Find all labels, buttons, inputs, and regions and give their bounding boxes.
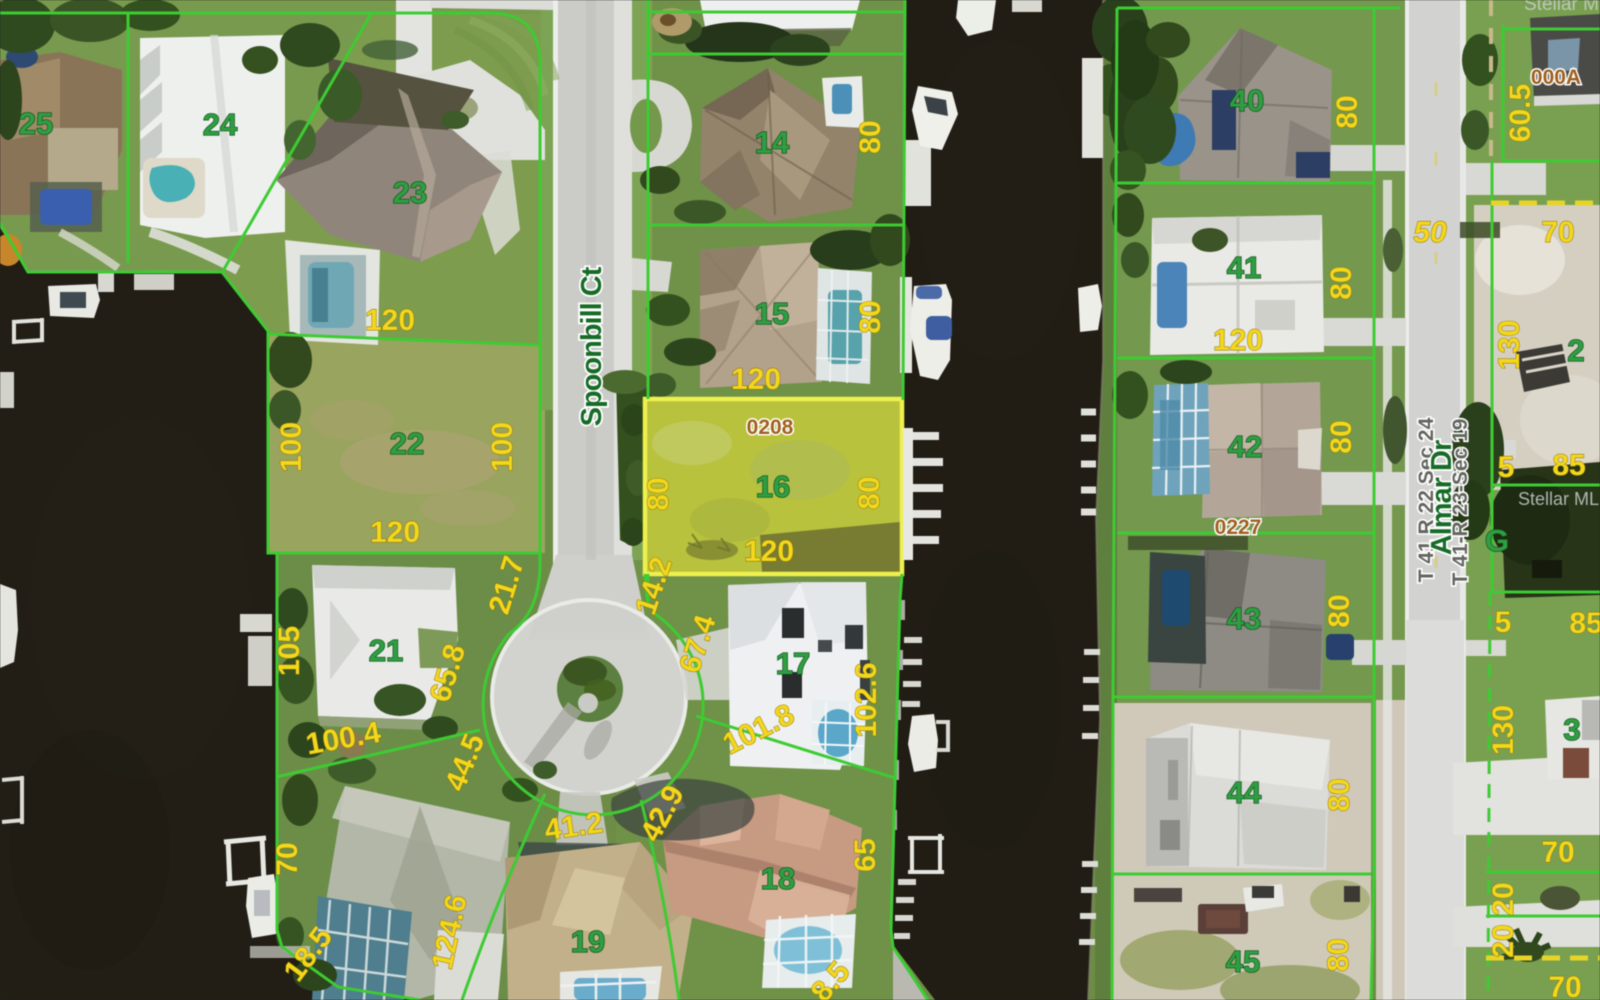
svg-text:000A: 000A bbox=[1531, 66, 1581, 89]
svg-text:80: 80 bbox=[1323, 594, 1356, 627]
svg-text:85: 85 bbox=[1552, 449, 1585, 482]
svg-text:130: 130 bbox=[1487, 705, 1520, 755]
svg-text:80: 80 bbox=[642, 477, 675, 510]
svg-text:80: 80 bbox=[1325, 266, 1358, 299]
svg-text:42: 42 bbox=[1228, 429, 1262, 464]
svg-text:80: 80 bbox=[854, 300, 887, 333]
svg-text:19: 19 bbox=[571, 924, 605, 959]
svg-text:5: 5 bbox=[1498, 451, 1515, 484]
svg-text:40: 40 bbox=[1230, 83, 1264, 118]
svg-text:T 41-R 23-Sec 19: T 41-R 23-Sec 19 bbox=[1449, 419, 1472, 586]
svg-text:17: 17 bbox=[776, 646, 810, 681]
svg-text:Stellar MLS: Stellar MLS bbox=[1524, 0, 1600, 15]
svg-text:80: 80 bbox=[1325, 420, 1358, 453]
svg-text:25: 25 bbox=[19, 106, 53, 141]
svg-text:43: 43 bbox=[1227, 601, 1261, 636]
svg-text:21: 21 bbox=[369, 633, 403, 668]
svg-text:85: 85 bbox=[1569, 607, 1600, 640]
svg-text:50: 50 bbox=[1413, 216, 1447, 249]
svg-text:5: 5 bbox=[1495, 606, 1512, 639]
svg-text:102.6: 102.6 bbox=[850, 662, 883, 737]
svg-text:18: 18 bbox=[761, 861, 795, 896]
svg-text:120: 120 bbox=[370, 516, 420, 549]
svg-text:120: 120 bbox=[744, 535, 794, 568]
svg-text:120: 120 bbox=[365, 304, 415, 337]
svg-text:G: G bbox=[1485, 523, 1509, 558]
svg-text:100: 100 bbox=[275, 422, 308, 472]
svg-text:80: 80 bbox=[1323, 778, 1356, 811]
svg-text:70: 70 bbox=[1548, 971, 1581, 1000]
svg-text:23: 23 bbox=[393, 175, 427, 210]
svg-text:80: 80 bbox=[1322, 938, 1355, 971]
svg-text:24: 24 bbox=[203, 107, 238, 142]
svg-text:15: 15 bbox=[755, 296, 789, 331]
svg-text:20: 20 bbox=[1487, 882, 1520, 915]
svg-text:41: 41 bbox=[1227, 250, 1261, 285]
svg-text:20: 20 bbox=[1487, 924, 1520, 957]
svg-text:45: 45 bbox=[1226, 944, 1260, 979]
svg-text:120: 120 bbox=[1213, 324, 1263, 357]
svg-text:80: 80 bbox=[1331, 95, 1364, 128]
svg-text:120: 120 bbox=[731, 363, 781, 396]
svg-text:65: 65 bbox=[849, 838, 882, 871]
svg-text:22: 22 bbox=[390, 426, 424, 461]
svg-text:130: 130 bbox=[1493, 320, 1526, 370]
svg-text:Spoonbill Ct: Spoonbill Ct bbox=[576, 266, 608, 426]
svg-text:0208: 0208 bbox=[747, 416, 794, 439]
svg-text:44: 44 bbox=[1227, 775, 1262, 810]
svg-text:80: 80 bbox=[854, 120, 887, 153]
svg-text:80: 80 bbox=[853, 476, 886, 509]
svg-text:105: 105 bbox=[273, 626, 306, 676]
svg-text:100: 100 bbox=[486, 422, 519, 472]
svg-text:14: 14 bbox=[755, 125, 790, 160]
svg-text:2: 2 bbox=[1567, 333, 1584, 368]
svg-text:60.5: 60.5 bbox=[1504, 84, 1537, 142]
svg-text:0227: 0227 bbox=[1215, 516, 1262, 539]
svg-text:16: 16 bbox=[756, 469, 790, 504]
svg-text:3: 3 bbox=[1563, 712, 1580, 747]
svg-text:70: 70 bbox=[271, 842, 304, 875]
svg-text:70: 70 bbox=[1541, 836, 1574, 869]
svg-text:Stellar MLS: Stellar MLS bbox=[1518, 489, 1600, 509]
svg-text:70: 70 bbox=[1541, 216, 1574, 249]
